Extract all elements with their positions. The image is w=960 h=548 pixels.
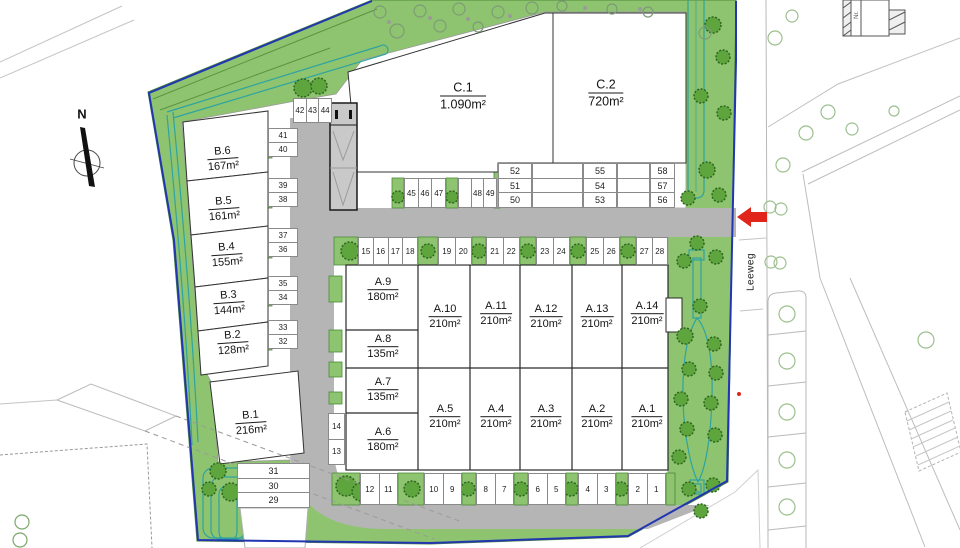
parking-group-19-20: 19 20 [438,237,472,265]
parking-stall: 8 [477,474,496,504]
parking-stall: 34 [269,291,297,304]
plot-label-a8: A.8135m² [367,333,398,361]
parking-group-27-28: 27 28 [636,237,668,265]
parking-stall: 52 [499,164,531,179]
parking-group-2-1: 2 1 [628,473,666,505]
parking-stall: 55 [584,164,616,179]
parking-stall: 11 [380,474,398,504]
parking-stall: 4 [579,474,598,504]
parking-group-21-22: 21 22 [486,237,520,265]
parking-group-41-40: 41 40 [268,128,298,157]
parking-stall: 30 [238,479,309,494]
parking-stall [459,179,472,207]
parking-stall: 27 [637,238,653,264]
parking-stall: 17 [389,238,404,264]
parking-stall: 28 [653,238,668,264]
parking-stall: 45 [405,179,419,207]
parking-stall: 51 [499,179,531,194]
parking-stall: 10 [425,474,444,504]
plot-label-a3: A.3210m² [530,403,561,431]
parking-group-52-50: 52 51 50 [498,163,532,208]
parking-stall: 41 [269,129,297,143]
parking-stall: 50 [499,193,531,207]
plot-label-b4: B.4155m² [210,240,243,270]
parking-group-58-56: 58 57 56 [650,163,675,208]
parking-group-4-3: 4 3 [578,473,616,505]
parking-stall: 38 [269,193,297,206]
parking-stall: 48 [472,179,485,207]
parking-stall: 40 [269,143,297,156]
parking-stall: 15 [359,238,374,264]
parking-group-39-38: 39 38 [268,178,298,207]
parking-group-6-5: 6 5 [528,473,566,505]
parking-stall: 2 [629,474,648,504]
parking-stall: 58 [651,164,674,179]
parking-stall: 39 [269,179,297,193]
plot-label-b2: B.2128m² [216,328,249,358]
plot-label-b1: B.1216m² [234,408,267,438]
parking-stall: 44 [319,99,331,122]
parking-stall: 46 [419,179,433,207]
offsite-building-label: Nr. [854,11,860,19]
parking-group-14-13: 14 13 [328,413,345,465]
plot-label-a6: A.6180m² [367,426,398,454]
utility-building [330,103,357,210]
parking-stall: 49 [484,179,496,207]
parking-stall: 57 [651,179,674,194]
parking-stall: 3 [598,474,616,504]
parking-group-15-18: 15 16 17 18 [358,237,418,265]
parking-stall: 43 [307,99,320,122]
plot-label-a2: A.2210m² [581,403,612,431]
parking-stall: 13 [329,440,344,465]
plot-label-b6: B.6167m² [206,144,239,174]
parking-stall: 22 [504,238,520,264]
parking-group-10-9: 10 9 [424,473,462,505]
parking-stall: 35 [269,277,297,291]
plot-label-a11: A.11210m² [480,300,512,328]
compass-north-label: N [77,107,86,122]
parking-stall: 7 [496,474,514,504]
plot-label-a10: A.10210m² [429,303,462,331]
parking-stall: 31 [238,464,309,479]
crosswalk-hatch [905,393,960,471]
entrance-arrow-icon [737,207,767,227]
parking-group-35-34: 35 34 [268,276,298,305]
parking-stall: 47 [432,179,445,207]
parking-stall: 16 [374,238,389,264]
plot-label-a14: A.14210m² [631,300,664,328]
parking-stall: 5 [548,474,566,504]
plot-label-a13: A.13210m² [581,303,614,331]
parking-stall: 54 [584,179,616,194]
parking-group-8-7: 8 7 [476,473,514,505]
parking-group-55-53: 55 54 53 [583,163,617,208]
parking-stall: 25 [587,238,604,264]
parking-stall: 26 [604,238,620,264]
parking-stall: 36 [269,243,297,256]
plot-label-a4: A.4210m² [480,403,511,431]
parking-stall: 29 [238,493,309,507]
parking-stall: 21 [487,238,504,264]
parking-stall: 18 [403,238,417,264]
parking-stall: 56 [651,193,674,207]
plot-label-a1: A.1210m² [631,403,662,431]
hydrant-marker [737,392,741,396]
plot-label-a5: A.5210m² [429,403,460,431]
compass-rose-icon [70,127,104,187]
parking-group-23-24: 23 24 [536,237,570,265]
parking-stall: 53 [584,193,616,207]
parking-group-42-44: 42 43 44 [293,98,332,123]
parking-group-37-36: 37 36 [268,228,298,257]
parking-stall: 23 [537,238,554,264]
parking-stall: 1 [648,474,666,504]
parking-stall: 37 [269,229,297,243]
parking-stall: 24 [554,238,570,264]
plot-label-a7: A.7135m² [367,376,398,404]
plot-label-c1: C.11.090m² [440,81,486,112]
parking-group-mid-1 [532,163,583,208]
offsite-building [843,0,905,36]
site-plan: C.11.090m² C.2720m² B.6167m² B.5161m² B.… [0,0,960,548]
parking-group-31-29: 31 30 29 [237,463,310,508]
plot-label-a12: A.12210m² [530,303,563,331]
plot-label-a9: A.9180m² [367,276,398,304]
parking-stall: 14 [329,414,344,440]
plot-label-b3: B.3144m² [212,288,245,318]
parking-stall: 32 [269,335,297,348]
parking-group-33-32: 33 32 [268,320,298,349]
parking-group-45-47: 45 46 47 [404,178,446,208]
parking-stall: 42 [294,99,307,122]
parking-group-48-49: 48 49 [458,178,497,208]
parking-stall: 20 [456,238,472,264]
plot-label-b5: B.5161m² [207,194,240,224]
parking-stall: 33 [269,321,297,335]
parking-stall: 6 [529,474,548,504]
street-label-leeweg: Leeweg [746,253,757,291]
parking-stall: 19 [439,238,456,264]
plot-label-c2: C.2720m² [588,78,623,109]
parking-stall: 12 [361,474,380,504]
parking-group-25-26: 25 26 [586,237,620,265]
parking-group-mid-2 [617,163,650,208]
parking-stall: 9 [444,474,462,504]
parking-group-12-11: 12 11 [360,473,398,505]
